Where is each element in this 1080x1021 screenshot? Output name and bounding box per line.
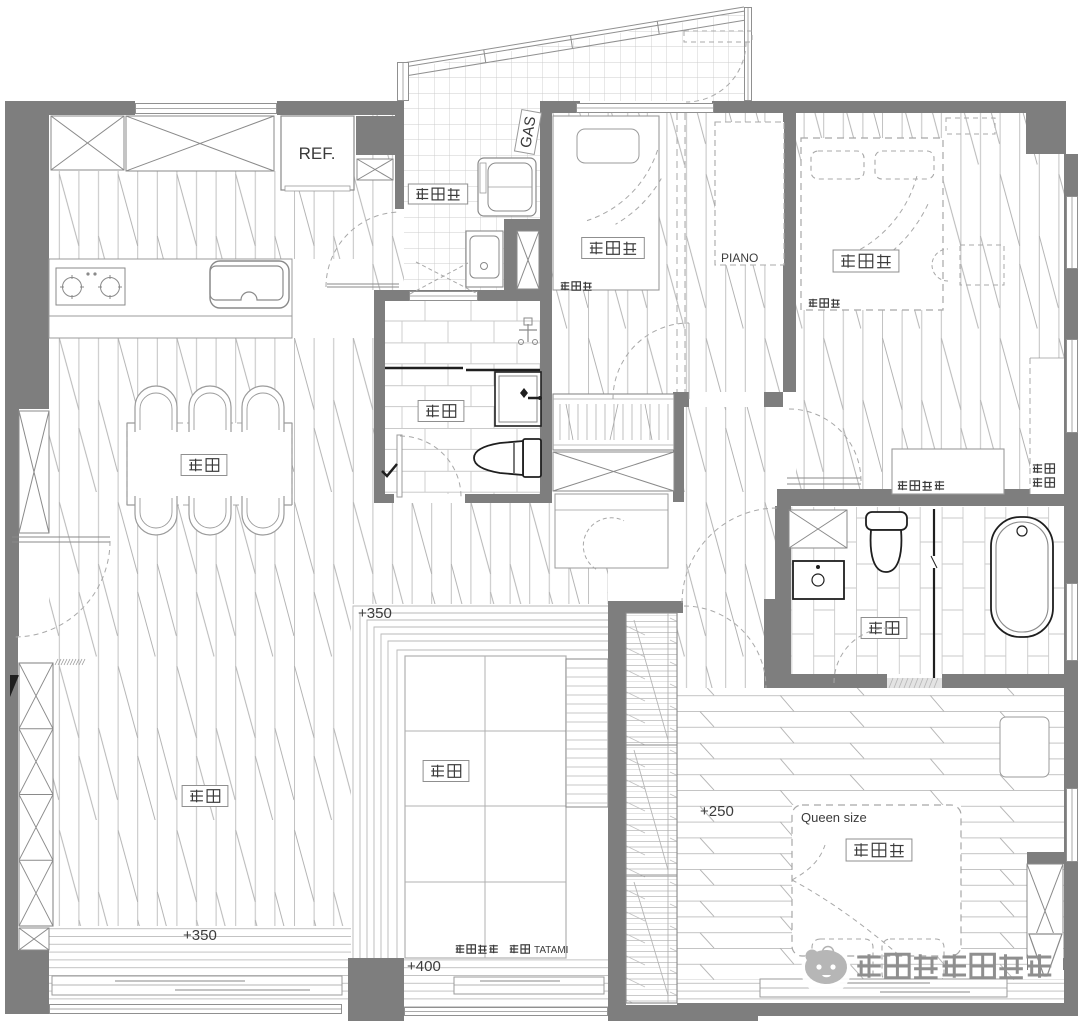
svg-text:+250: +250	[700, 803, 734, 820]
svg-text:+350: +350	[358, 605, 392, 622]
svg-text:Queen size: Queen size	[801, 810, 867, 825]
svg-text:+400: +400	[407, 958, 441, 975]
svg-text:TATAMI: TATAMI	[534, 945, 568, 956]
svg-text:PIANO: PIANO	[721, 251, 758, 265]
svg-text:REF.: REF.	[299, 144, 336, 163]
svg-text:+350: +350	[183, 927, 217, 944]
